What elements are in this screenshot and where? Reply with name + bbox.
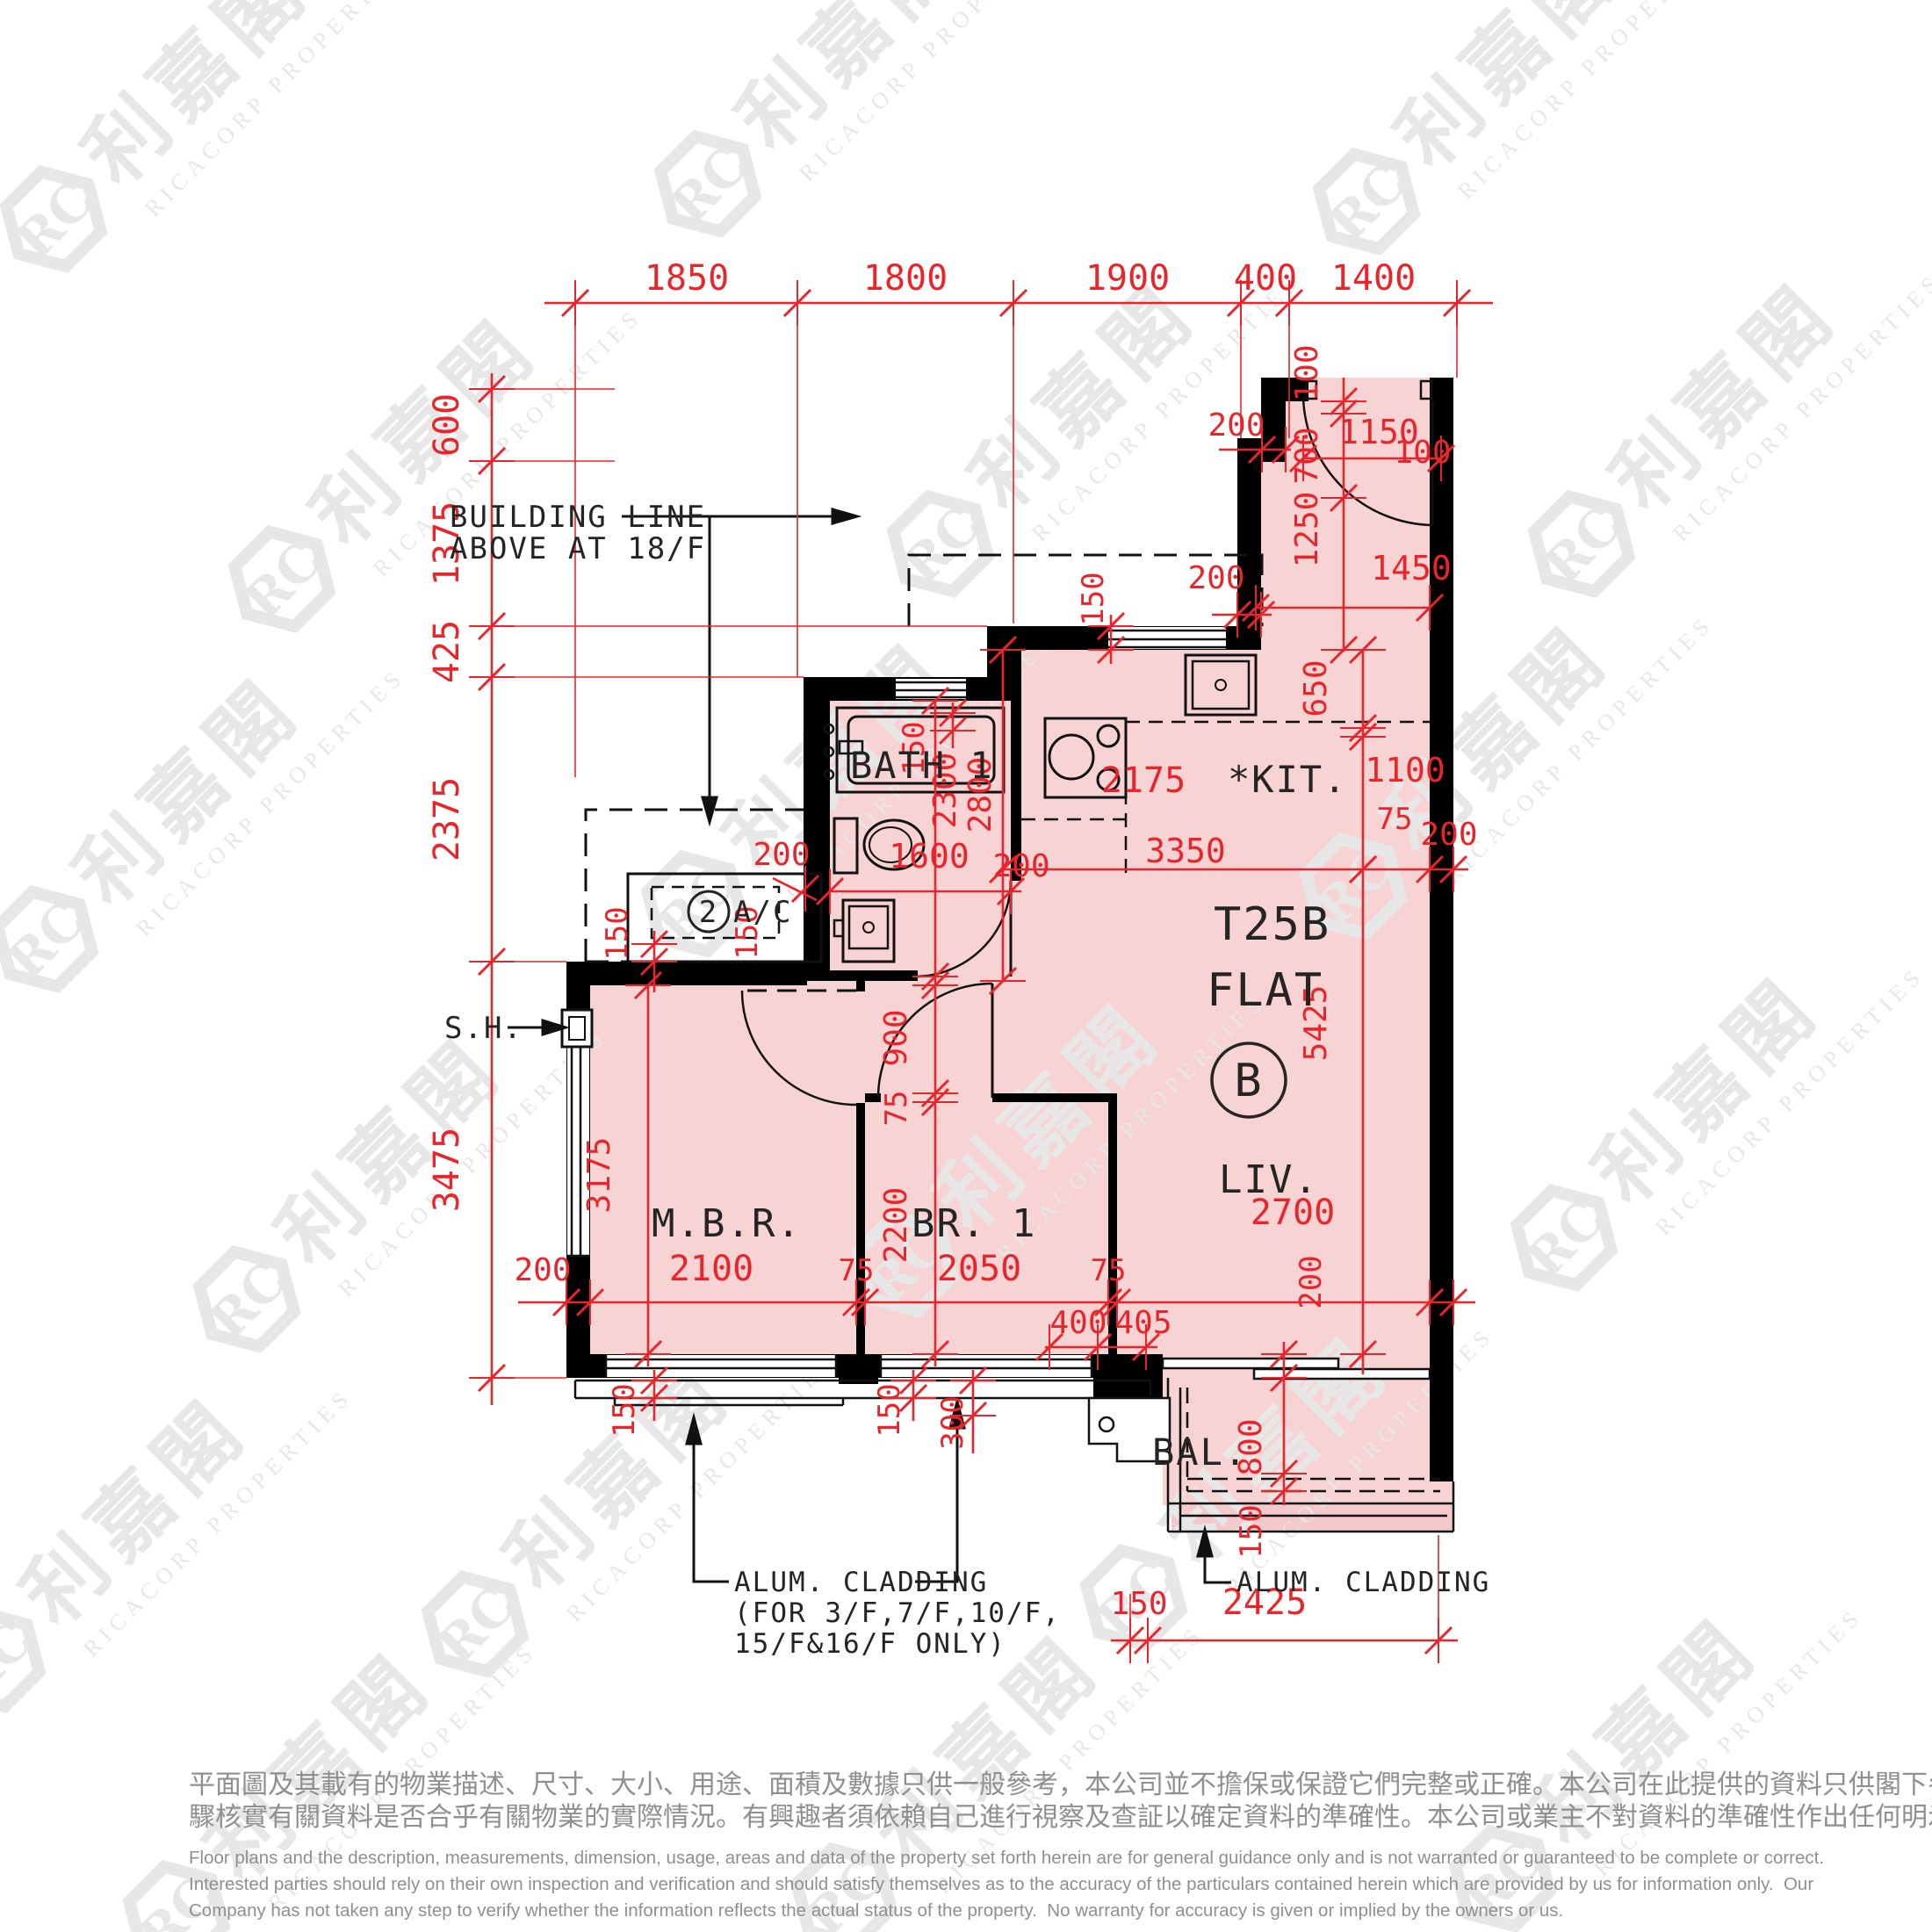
dimension-label: 400 xyxy=(1049,1305,1107,1341)
dimension-label: 2200 xyxy=(878,1187,914,1264)
wall xyxy=(856,1103,865,1354)
dimension-label: 425 xyxy=(427,620,467,683)
dimension-label: 100 xyxy=(1394,435,1451,471)
ricacorp-watermark: RC利嘉閣RICACORP PROPERTIES xyxy=(1434,1533,1868,1932)
dimension-label: 400 xyxy=(1234,258,1297,299)
dimension-label: 3350 xyxy=(1145,832,1226,870)
wall xyxy=(566,962,807,985)
flat-type-2: FLAT xyxy=(1207,964,1323,1017)
dimension-label: 600 xyxy=(427,393,467,457)
dimension-label: 1800 xyxy=(863,258,948,299)
dimension-label: 1400 xyxy=(1331,258,1416,299)
dimension-label: 150 xyxy=(1076,572,1111,625)
room-kitchen: *KIT. xyxy=(1228,758,1347,801)
dimension-label: 1250 xyxy=(1289,492,1325,568)
dimension-label: 300 xyxy=(935,1395,970,1449)
disclaimer-en-line: Company has not taken any step to verify… xyxy=(189,1900,1563,1921)
dimension-label: 1900 xyxy=(1085,258,1170,299)
dimension-label: 150 xyxy=(1110,1586,1167,1622)
floor-plan: RC利嘉閣RICACORP PROPERTIESRC利嘉閣RICACORP PR… xyxy=(0,0,1932,1932)
dimension-label: 200 xyxy=(753,837,810,873)
wall xyxy=(856,981,865,991)
dimension-label: 200 xyxy=(514,1252,571,1288)
bath-window xyxy=(896,679,966,699)
arrowhead-right xyxy=(833,509,857,523)
kitchen-window xyxy=(1108,627,1226,649)
room-living: LIV. xyxy=(1219,1157,1319,1202)
sh-label: S.H. xyxy=(444,1011,523,1046)
dimension-label: 900 xyxy=(878,1009,914,1066)
dimension-label: 3475 xyxy=(427,1128,467,1212)
ricacorp-watermark: RC利嘉閣RICACORP PROPERTIES xyxy=(639,0,1073,272)
dimension-label: 700 xyxy=(1289,427,1325,484)
dimension-label: 650 xyxy=(1298,660,1334,717)
ricacorp-watermark: RC利嘉閣RICACORP PROPERTIES xyxy=(0,594,410,1027)
dimension-label: 150 xyxy=(607,1383,642,1437)
ricacorp-watermark: RC利嘉閣RICACORP PROPERTIES xyxy=(1513,198,1932,632)
dimension-label: 1600 xyxy=(889,837,970,876)
disclaimer-layer: 平面圖及其載有的物業描述、尺寸、大小、用途、面積及數據只供一般參考，本公司並不擔… xyxy=(189,1770,1932,1921)
ricacorp-watermark: RC利嘉閣RICACORP PROPERTIES xyxy=(1496,892,1929,1326)
room-br1: BR. 1 xyxy=(912,1201,1036,1246)
dimension-label: 75 xyxy=(839,1253,875,1288)
dimension-label: 2375 xyxy=(427,777,467,861)
dimension-label: 1450 xyxy=(1371,549,1452,588)
flat-type-1: T25B xyxy=(1214,898,1330,951)
dimension-label: 150 xyxy=(600,906,635,960)
building-line-note-1: BUILDING LINE xyxy=(450,500,706,535)
dimension-label: 200 xyxy=(1420,817,1477,853)
disclaimer-en-line: Interested parties should rely on their … xyxy=(189,1874,1813,1894)
room-bal: BAL. xyxy=(1152,1431,1248,1474)
wall xyxy=(1430,378,1453,1378)
dimension-label: 75 xyxy=(879,1091,914,1127)
alum-note-left-2: (FOR 3/F,7/F,10/F, xyxy=(734,1597,1061,1629)
dimension-label: 2175 xyxy=(1101,761,1186,801)
dimension-label: 1850 xyxy=(645,258,729,299)
dimension-label: 1100 xyxy=(1365,751,1445,789)
dimension-label: 3175 xyxy=(581,1137,617,1214)
alum-note-right: ALUM. CLADDING xyxy=(1236,1567,1490,1598)
disclaimer-zh-line: 平面圖及其載有的物業描述、尺寸、大小、用途、面積及數據只供一般參考，本公司並不擔… xyxy=(189,1770,1932,1799)
dimension-label: 405 xyxy=(1114,1305,1171,1341)
ricacorp-watermark: RC利嘉閣RICACORP PROPERTIES xyxy=(1298,0,1732,290)
ac-label: A/C xyxy=(733,895,792,930)
dimension-label: 100 xyxy=(1289,344,1325,401)
dimension-label: 150 xyxy=(872,1383,907,1437)
wall xyxy=(804,677,830,981)
disclaimer-en-line: Floor plans and the description, measure… xyxy=(189,1848,1824,1868)
alum-note-left-1: ALUM. CLADDING xyxy=(734,1567,988,1598)
ricacorp-watermark: RC利嘉閣RICACORP PROPERTIES xyxy=(0,0,419,307)
dimension-label: 200 xyxy=(992,848,1049,884)
dimension-label: 200 xyxy=(1207,407,1265,443)
room-mbr: M.B.R. xyxy=(652,1201,802,1246)
wall xyxy=(830,970,918,981)
dimension-label: 2100 xyxy=(669,1249,753,1289)
dimension-label: 2050 xyxy=(937,1249,1021,1289)
ac-number: 2 xyxy=(699,895,718,930)
dimension-label: 150 xyxy=(1234,1504,1269,1558)
wall xyxy=(1430,1378,1453,1481)
building-line-note-2: ABOVE AT 18/F xyxy=(450,531,706,566)
dimension-label: 75 xyxy=(1091,1253,1127,1288)
unit-letter: B xyxy=(1234,1055,1263,1107)
room-bath: BATH 1 xyxy=(850,744,994,787)
wall xyxy=(1011,650,1021,701)
alum-note-left-3: 15/F&16/F ONLY) xyxy=(734,1628,1006,1660)
mbr-south-window xyxy=(606,1355,836,1377)
ricacorp-watermark: RC利嘉閣RICACORP PROPERTIES xyxy=(178,954,612,1388)
wall xyxy=(992,1093,1117,1102)
disclaimer-zh-line: 驟核實有關資料是否合乎有關物業的實際情況。有興趣者須依賴自己進行視察及查証以確定… xyxy=(189,1803,1932,1832)
wall xyxy=(1093,1354,1163,1398)
dimension-label: 200 xyxy=(1187,560,1244,596)
dimension-label: 75 xyxy=(1377,802,1413,837)
ricacorp-watermark: RC利嘉閣RICACORP PROPERTIES xyxy=(0,1314,357,1748)
dimension-label: 200 xyxy=(1294,1255,1329,1308)
